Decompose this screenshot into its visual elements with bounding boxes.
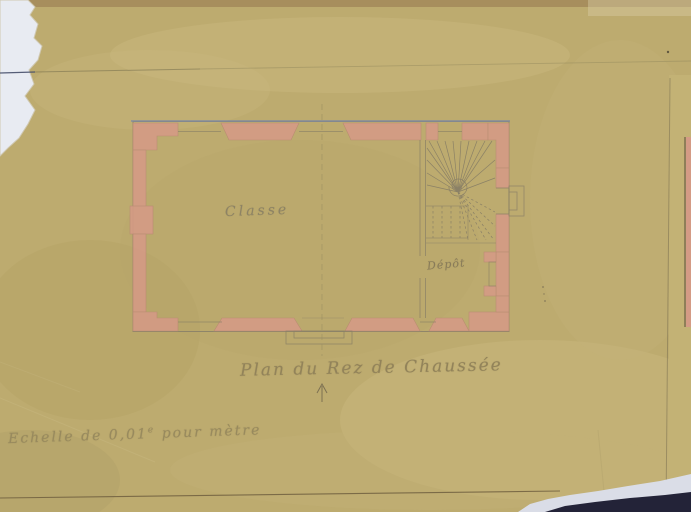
adjacent-sheet-wall-fragment	[686, 137, 691, 327]
scanned-drawing-page: Classe Dépôt Plan du Rez de Chaussée Ech…	[0, 0, 691, 512]
room-label-classe: Classe	[225, 202, 290, 220]
adjacent-sheet-right-edge	[666, 51, 691, 512]
scale-note-suffix: pour mètre	[155, 422, 262, 442]
